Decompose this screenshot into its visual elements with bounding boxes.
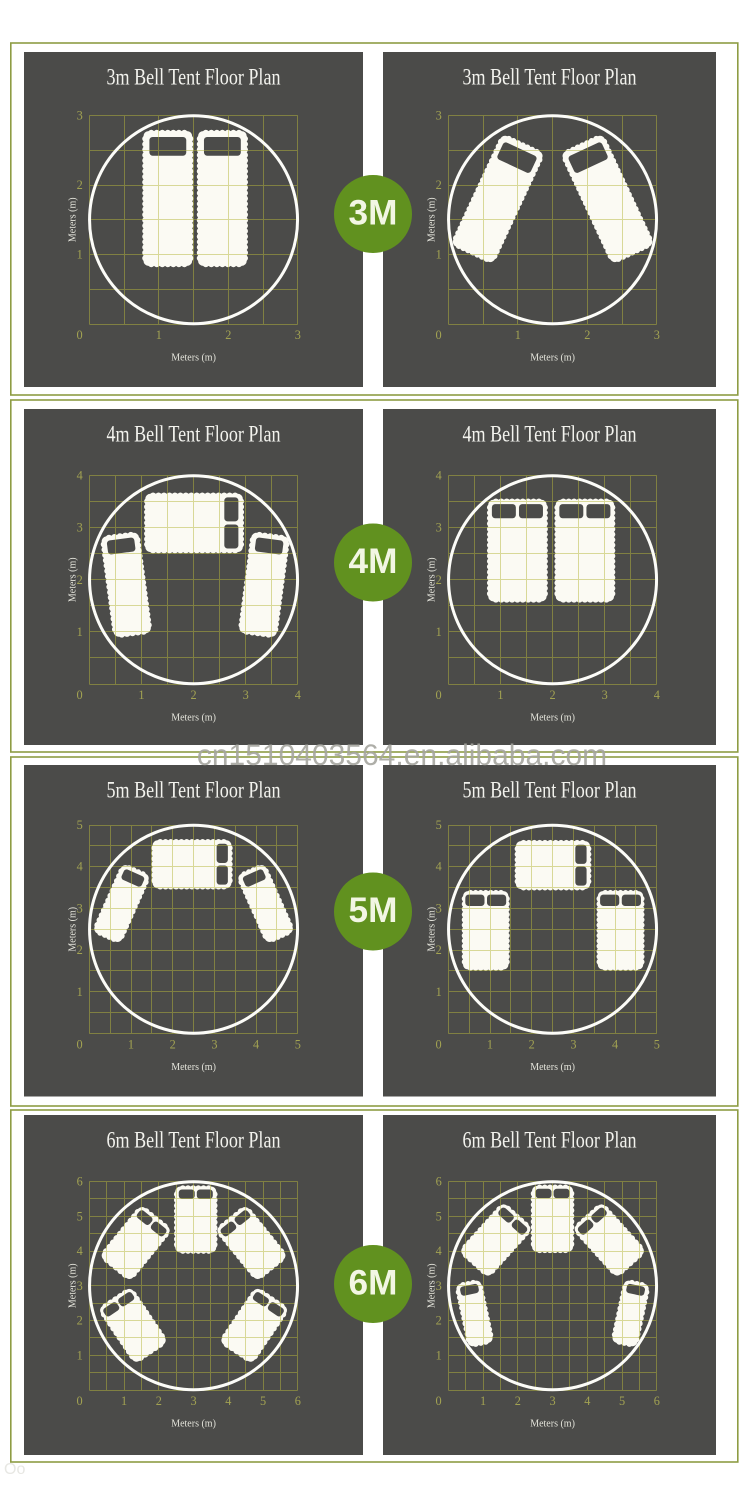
svg-text:3m Bell Tent Floor Plan: 3m Bell Tent Floor Plan	[463, 65, 637, 91]
svg-text:6M: 6M	[349, 1264, 398, 1303]
svg-text:3m Bell Tent Floor Plan: 3m Bell Tent Floor Plan	[107, 65, 281, 91]
svg-text:Oo: Oo	[4, 1461, 25, 1478]
svg-text:6m Bell Tent Floor Plan: 6m Bell Tent Floor Plan	[107, 1128, 281, 1154]
svg-text:3: 3	[436, 521, 442, 535]
svg-text:1: 1	[436, 625, 442, 639]
svg-text:Meters (m): Meters (m)	[530, 1062, 575, 1073]
svg-text:5: 5	[436, 818, 442, 832]
svg-text:3M: 3M	[349, 194, 398, 233]
svg-text:1: 1	[480, 1394, 486, 1408]
svg-text:Meters (m): Meters (m)	[171, 1062, 216, 1073]
svg-text:1: 1	[128, 1037, 134, 1051]
svg-text:4: 4	[436, 860, 442, 874]
svg-text:3: 3	[549, 1394, 555, 1408]
svg-text:cn1510403564.en.alibaba.com: cn1510403564.en.alibaba.com	[197, 739, 607, 772]
svg-text:3: 3	[243, 688, 249, 702]
svg-text:1: 1	[436, 248, 442, 262]
svg-text:5: 5	[436, 1209, 442, 1223]
svg-text:4: 4	[584, 1394, 590, 1408]
svg-text:Meters (m): Meters (m)	[426, 907, 437, 952]
svg-text:1: 1	[487, 1037, 493, 1051]
svg-text:4: 4	[77, 860, 83, 874]
svg-text:Meters (m): Meters (m)	[67, 197, 78, 242]
svg-text:3: 3	[190, 1394, 196, 1408]
svg-text:Meters (m): Meters (m)	[67, 907, 78, 952]
svg-text:6: 6	[654, 1394, 660, 1408]
svg-text:3: 3	[602, 688, 608, 702]
svg-text:3: 3	[211, 1037, 217, 1051]
svg-text:3: 3	[295, 328, 301, 342]
svg-text:1: 1	[121, 1394, 127, 1408]
svg-text:2: 2	[190, 688, 196, 702]
svg-text:4M: 4M	[349, 542, 398, 581]
svg-text:4: 4	[77, 469, 83, 483]
svg-text:4: 4	[436, 469, 442, 483]
svg-text:5m Bell Tent Floor Plan: 5m Bell Tent Floor Plan	[463, 778, 637, 804]
svg-text:4: 4	[436, 1244, 442, 1258]
svg-text:3: 3	[77, 109, 83, 123]
svg-text:6: 6	[77, 1175, 83, 1189]
svg-text:3: 3	[570, 1037, 576, 1051]
svg-text:5: 5	[77, 1209, 83, 1223]
svg-text:1: 1	[77, 248, 83, 262]
svg-text:2: 2	[170, 1037, 176, 1051]
svg-text:2: 2	[549, 688, 555, 702]
svg-text:Meters (m): Meters (m)	[171, 353, 216, 364]
svg-text:1: 1	[138, 688, 144, 702]
svg-text:6: 6	[295, 1394, 301, 1408]
svg-text:Meters (m): Meters (m)	[530, 713, 575, 724]
svg-text:3: 3	[77, 521, 83, 535]
svg-text:1: 1	[77, 985, 83, 999]
svg-text:3: 3	[654, 328, 660, 342]
svg-text:4: 4	[612, 1037, 618, 1051]
svg-text:Meters (m): Meters (m)	[171, 1419, 216, 1430]
svg-text:Meters (m): Meters (m)	[67, 1263, 78, 1308]
svg-text:4: 4	[77, 1244, 83, 1258]
svg-text:5: 5	[260, 1394, 266, 1408]
svg-text:2: 2	[584, 328, 590, 342]
svg-text:5: 5	[295, 1037, 301, 1051]
svg-text:2: 2	[436, 178, 442, 192]
svg-text:0: 0	[77, 328, 83, 342]
svg-text:1: 1	[497, 688, 503, 702]
svg-text:Meters (m): Meters (m)	[67, 557, 78, 602]
svg-text:0: 0	[436, 688, 442, 702]
svg-text:4: 4	[253, 1037, 259, 1051]
svg-text:2: 2	[529, 1037, 535, 1051]
svg-text:Meters (m): Meters (m)	[530, 1419, 575, 1430]
svg-text:0: 0	[436, 1394, 442, 1408]
svg-text:6: 6	[436, 1175, 442, 1189]
svg-text:Meters (m): Meters (m)	[426, 557, 437, 602]
svg-text:2: 2	[77, 1314, 83, 1328]
svg-text:1: 1	[436, 985, 442, 999]
svg-text:2: 2	[436, 1314, 442, 1328]
svg-text:Meters (m): Meters (m)	[171, 713, 216, 724]
svg-text:2: 2	[515, 1394, 521, 1408]
svg-text:0: 0	[77, 1037, 83, 1051]
svg-text:0: 0	[77, 1394, 83, 1408]
svg-text:4: 4	[654, 688, 660, 702]
svg-text:4m Bell Tent Floor Plan: 4m Bell Tent Floor Plan	[107, 422, 281, 448]
svg-text:Meters (m): Meters (m)	[426, 1263, 437, 1308]
svg-text:0: 0	[436, 328, 442, 342]
svg-text:4m Bell Tent Floor Plan: 4m Bell Tent Floor Plan	[463, 422, 637, 448]
svg-text:1: 1	[436, 1348, 442, 1362]
svg-text:5: 5	[619, 1394, 625, 1408]
svg-text:4: 4	[225, 1394, 231, 1408]
svg-text:1: 1	[77, 1348, 83, 1362]
svg-text:2: 2	[77, 178, 83, 192]
svg-text:5: 5	[654, 1037, 660, 1051]
svg-text:2: 2	[225, 328, 231, 342]
svg-text:5M: 5M	[349, 891, 398, 930]
svg-text:5m Bell Tent Floor Plan: 5m Bell Tent Floor Plan	[107, 778, 281, 804]
svg-text:6m Bell Tent Floor Plan: 6m Bell Tent Floor Plan	[463, 1128, 637, 1154]
svg-text:5: 5	[77, 818, 83, 832]
svg-text:Meters (m): Meters (m)	[426, 197, 437, 242]
svg-text:Meters (m): Meters (m)	[530, 353, 575, 364]
svg-text:1: 1	[77, 625, 83, 639]
svg-text:3: 3	[436, 109, 442, 123]
svg-text:1: 1	[156, 328, 162, 342]
svg-text:4: 4	[295, 688, 301, 702]
svg-text:0: 0	[436, 1037, 442, 1051]
svg-text:0: 0	[77, 688, 83, 702]
svg-text:1: 1	[515, 328, 521, 342]
svg-text:2: 2	[156, 1394, 162, 1408]
